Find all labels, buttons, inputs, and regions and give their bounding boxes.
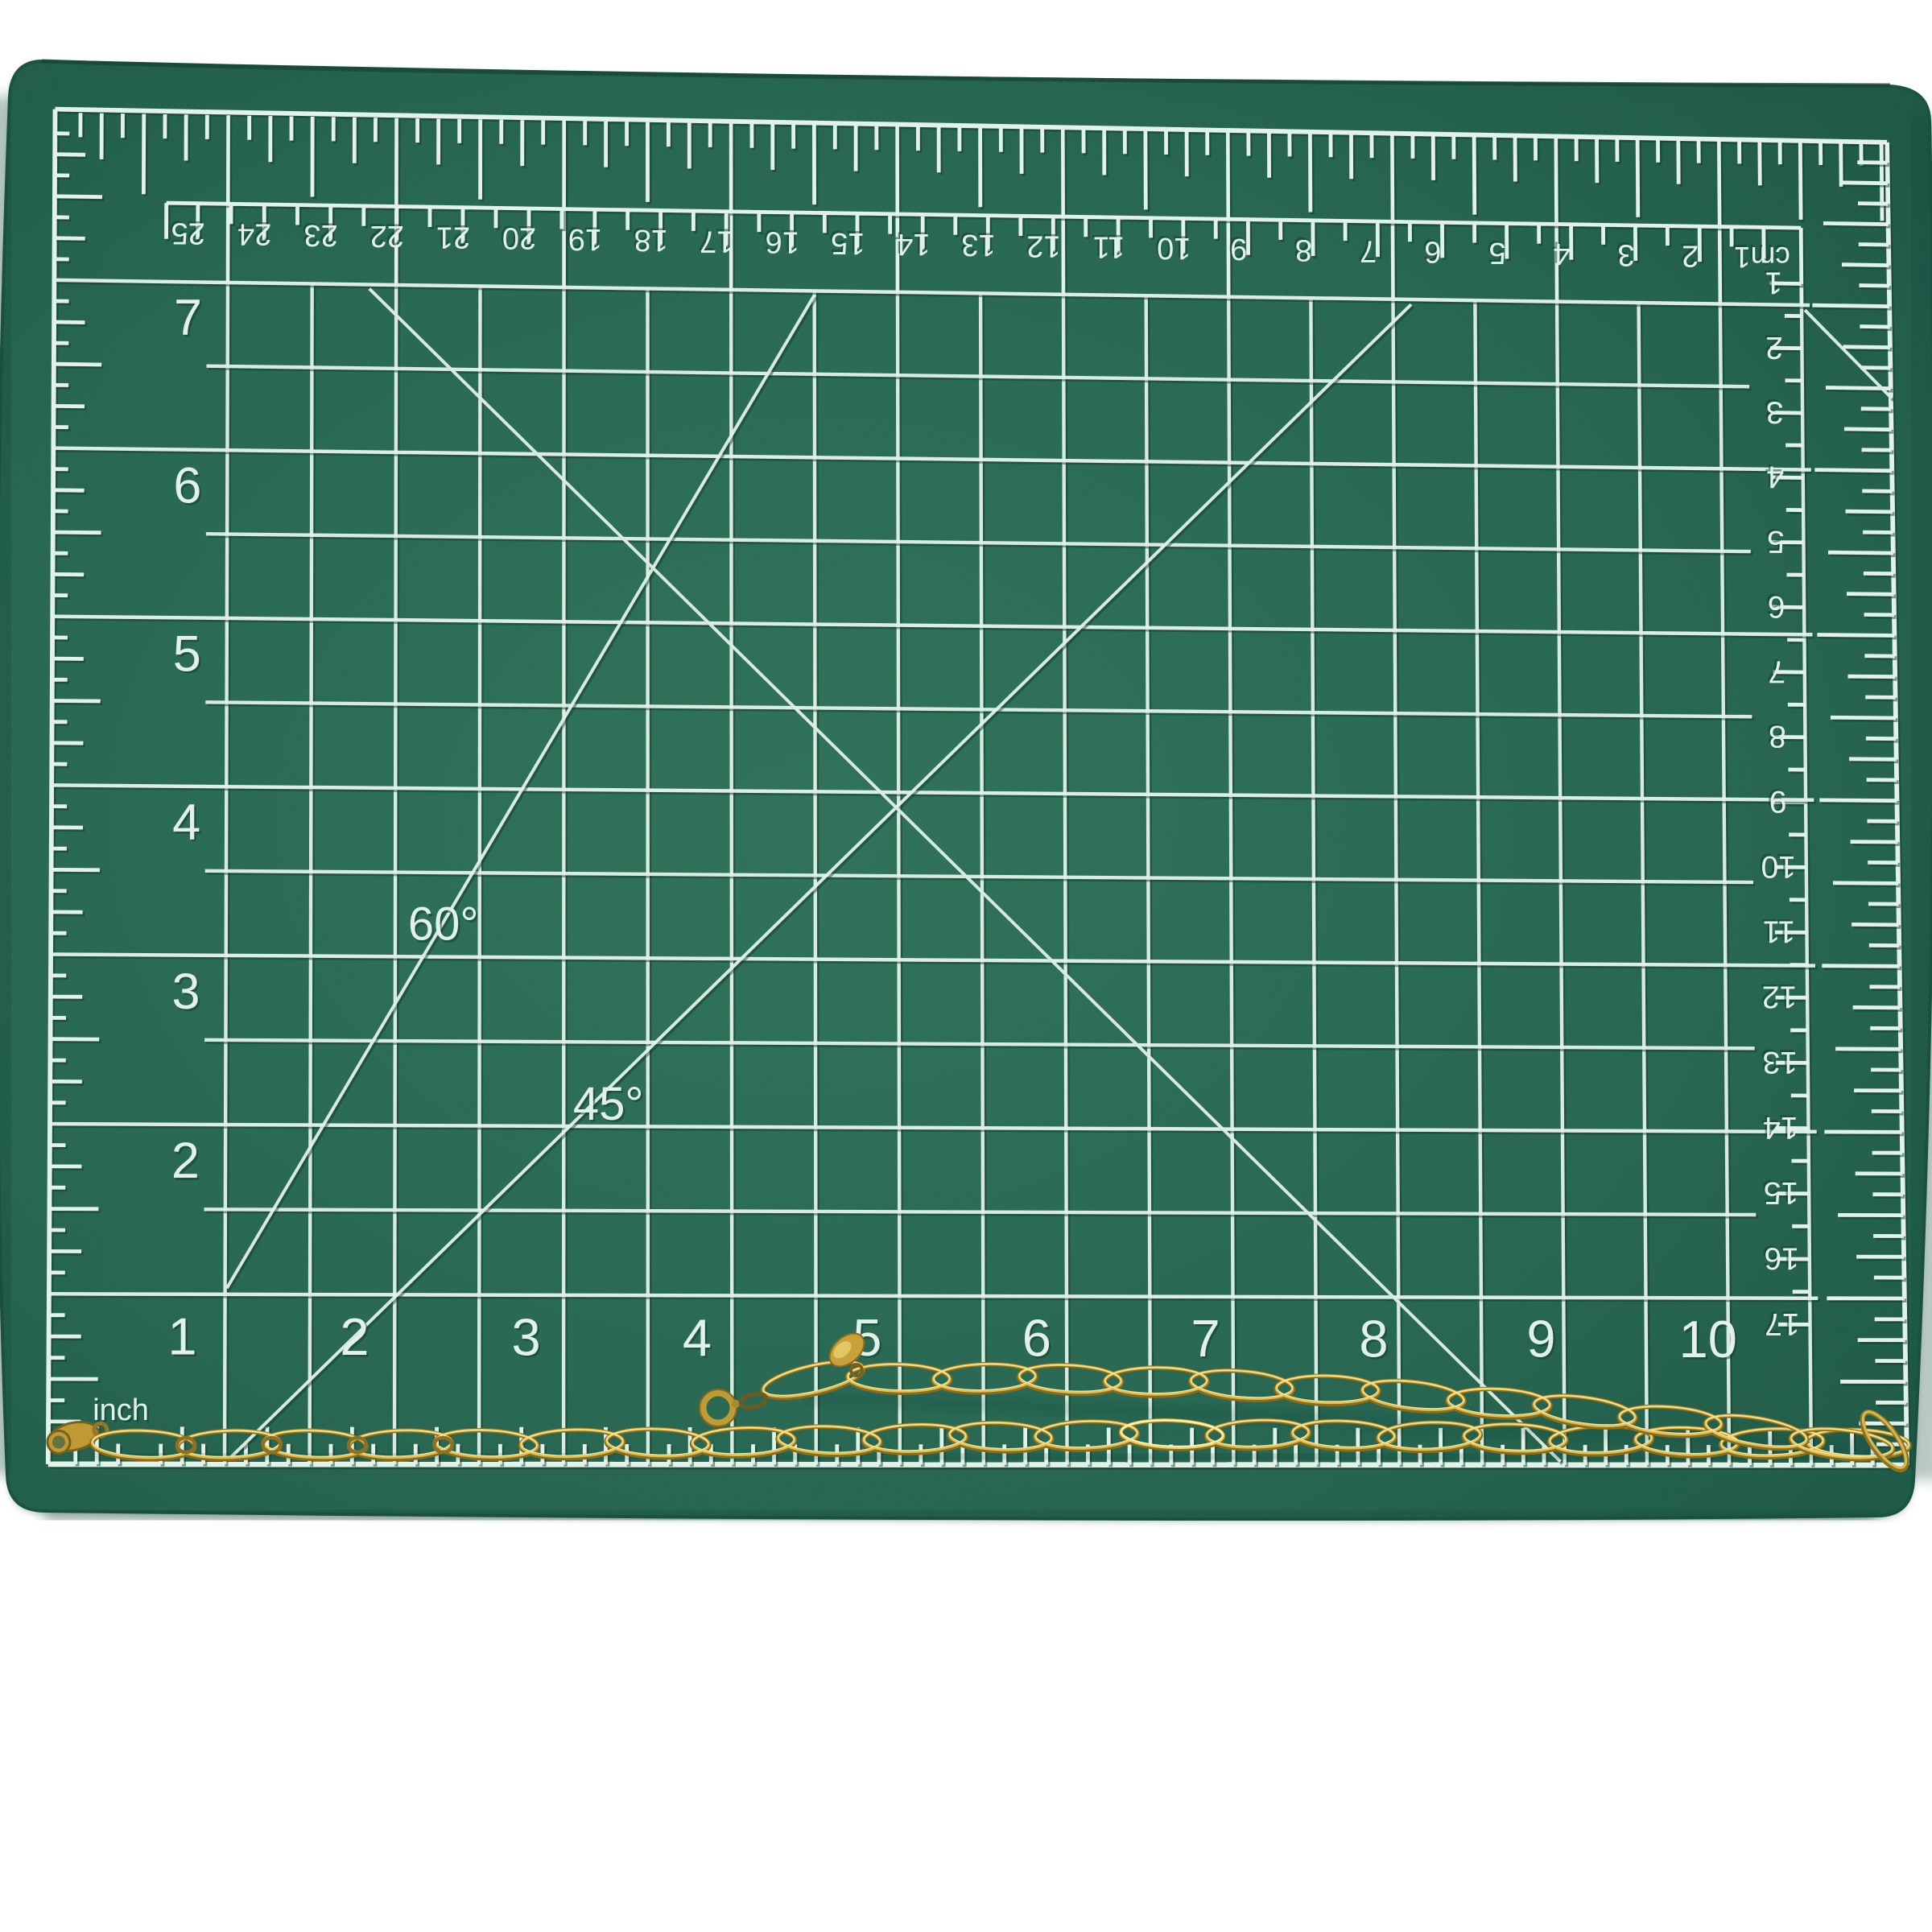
svg-text:6: 6 [1022,1309,1051,1368]
svg-text:8: 8 [1295,233,1312,266]
svg-text:20: 20 [502,221,536,255]
svg-text:23: 23 [303,218,337,252]
svg-text:3: 3 [1766,394,1784,429]
svg-text:3: 3 [512,1307,541,1366]
svg-text:1: 1 [1765,266,1782,300]
svg-text:10: 10 [1761,849,1796,884]
svg-text:2: 2 [340,1307,369,1366]
svg-text:3: 3 [1617,237,1634,271]
svg-text:2: 2 [171,1133,200,1189]
svg-text:9: 9 [1526,1310,1555,1368]
svg-text:8: 8 [1359,1309,1388,1368]
svg-text:3: 3 [171,964,200,1020]
svg-text:11: 11 [1093,230,1125,264]
svg-text:25: 25 [171,217,205,250]
svg-text:16: 16 [1765,1241,1799,1276]
svg-text:18: 18 [634,223,668,257]
svg-text:7: 7 [1360,234,1377,268]
svg-text:4: 4 [683,1308,712,1367]
svg-text:45°: 45° [573,1078,644,1130]
svg-text:5: 5 [173,625,201,682]
svg-text:4: 4 [1554,237,1571,270]
svg-text:6: 6 [1768,589,1785,624]
svg-text:12: 12 [1762,980,1797,1014]
svg-text:10: 10 [1157,231,1191,265]
svg-text:1: 1 [167,1307,196,1366]
svg-text:5: 5 [1767,524,1785,559]
svg-text:15: 15 [1764,1175,1798,1210]
svg-text:12: 12 [1026,229,1060,262]
svg-text:60°: 60° [408,898,479,951]
svg-text:14: 14 [896,227,930,261]
svg-text:7: 7 [1768,654,1785,688]
svg-text:22: 22 [370,219,404,253]
svg-text:15: 15 [831,226,865,260]
svg-text:10: 10 [1679,1310,1737,1368]
svg-text:4: 4 [1766,460,1784,494]
svg-text:13: 13 [1763,1045,1798,1080]
svg-text:11: 11 [1763,914,1796,949]
svg-text:2: 2 [1682,239,1699,273]
svg-text:4: 4 [172,795,200,851]
svg-text:6: 6 [173,457,201,514]
svg-text:7: 7 [174,290,202,346]
svg-text:19: 19 [568,222,602,256]
svg-text:5: 5 [1489,236,1506,270]
svg-text:8: 8 [1769,719,1786,753]
svg-text:17: 17 [1765,1307,1799,1341]
svg-text:16: 16 [766,225,799,259]
svg-text:17: 17 [700,224,733,258]
svg-text:6: 6 [1424,235,1441,269]
svg-text:21: 21 [436,220,470,254]
svg-text:9: 9 [1769,784,1787,819]
svg-text:2: 2 [1765,330,1783,365]
svg-text:24: 24 [237,217,271,251]
svg-text:14: 14 [1763,1110,1798,1145]
svg-text:7: 7 [1191,1309,1220,1368]
svg-text:13: 13 [961,228,995,262]
svg-text:9: 9 [1230,232,1247,266]
